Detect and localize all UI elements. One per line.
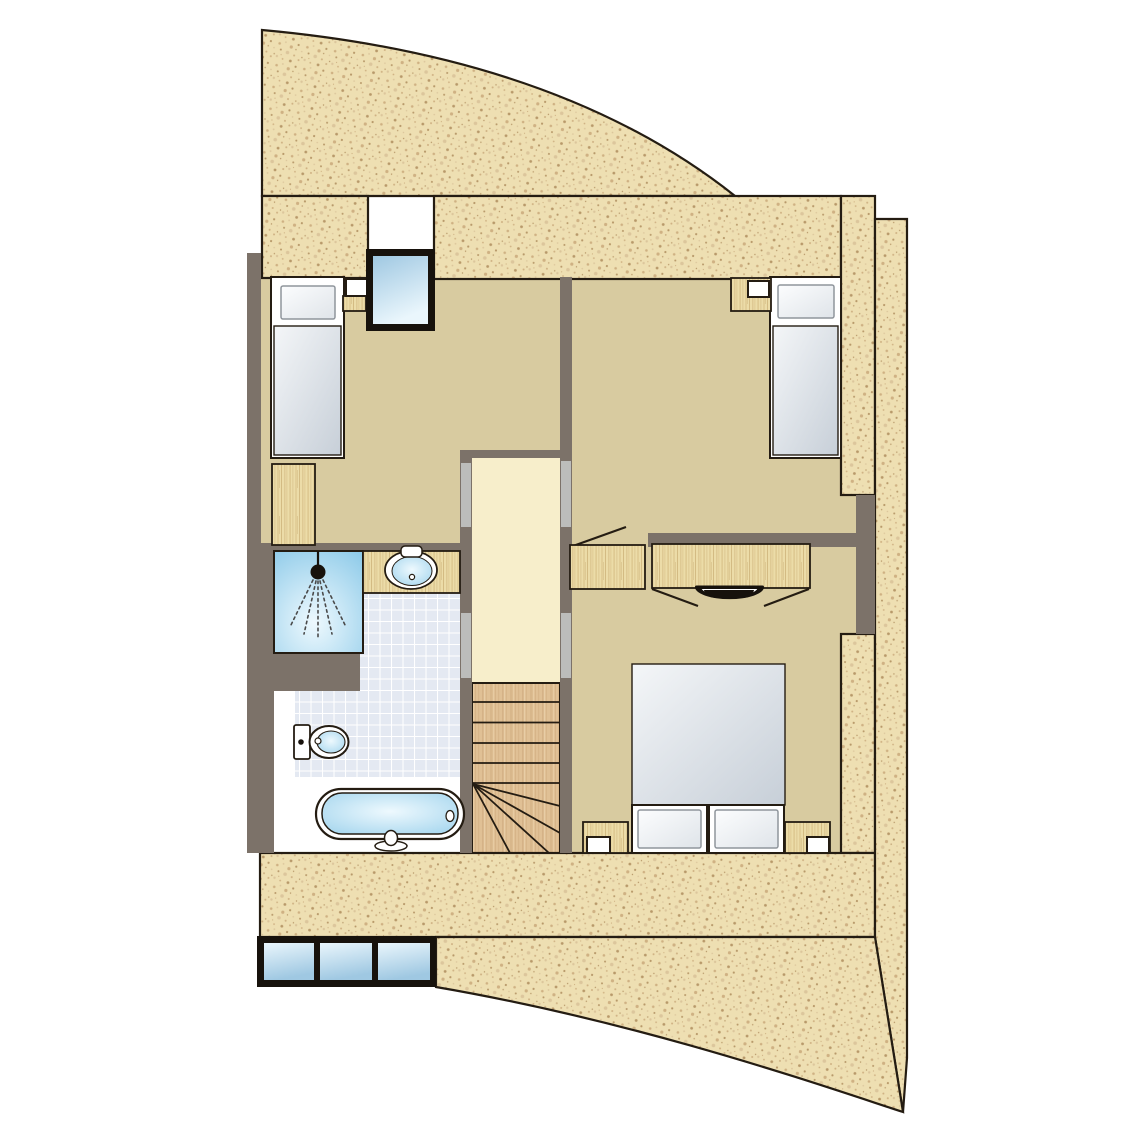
wall-left-upper: [247, 253, 261, 543]
duvet: [632, 664, 785, 805]
landing-floor: [472, 458, 560, 683]
wall-landing-top: [460, 450, 572, 458]
toilet-icon: [294, 725, 349, 759]
dressing-table-icon: [652, 544, 810, 588]
roof-top-curved: [262, 30, 735, 196]
door-landing-bedroom-top-left: [461, 463, 471, 527]
wall-shower-block: [247, 653, 360, 691]
roof-band-bottom: [260, 853, 875, 937]
skylight-top-icon: [366, 249, 435, 331]
wall-left-lower: [247, 543, 274, 853]
wardrobe-icon: [570, 545, 645, 589]
nightstand-right-icon: [785, 822, 830, 853]
single-bed-icon: [770, 277, 841, 458]
nightstand-icon: [343, 279, 367, 311]
washbasin-icon: [363, 546, 460, 593]
wall-right-stub: [856, 495, 875, 634]
door-landing-bathroom: [461, 613, 471, 678]
door-landing-bedroom-top-right: [561, 461, 571, 527]
bathtub-tap: [385, 831, 398, 846]
skylight-row-icon: [257, 936, 436, 987]
floor-plan: [0, 0, 1145, 1145]
roof-eaves-right-upper: [841, 196, 875, 495]
shower-icon: [274, 551, 363, 653]
single-bed-icon: [271, 277, 344, 458]
roof-band-top-left: [262, 196, 368, 278]
roof-bottom-wedge: [436, 937, 903, 1112]
nightstand-left-icon: [583, 822, 628, 853]
stairs-base: [472, 683, 560, 853]
roof-band-top-right: [434, 196, 841, 279]
nightstand-icon: [731, 278, 771, 311]
dresser-icon: [272, 464, 315, 545]
door-landing-bedroom-bottom-right: [561, 613, 571, 678]
staircase: [472, 683, 560, 853]
floor-plan-canvas: [0, 0, 1145, 1145]
roof-eaves-right-lower: [841, 634, 875, 853]
double-bed-icon: [632, 664, 785, 853]
